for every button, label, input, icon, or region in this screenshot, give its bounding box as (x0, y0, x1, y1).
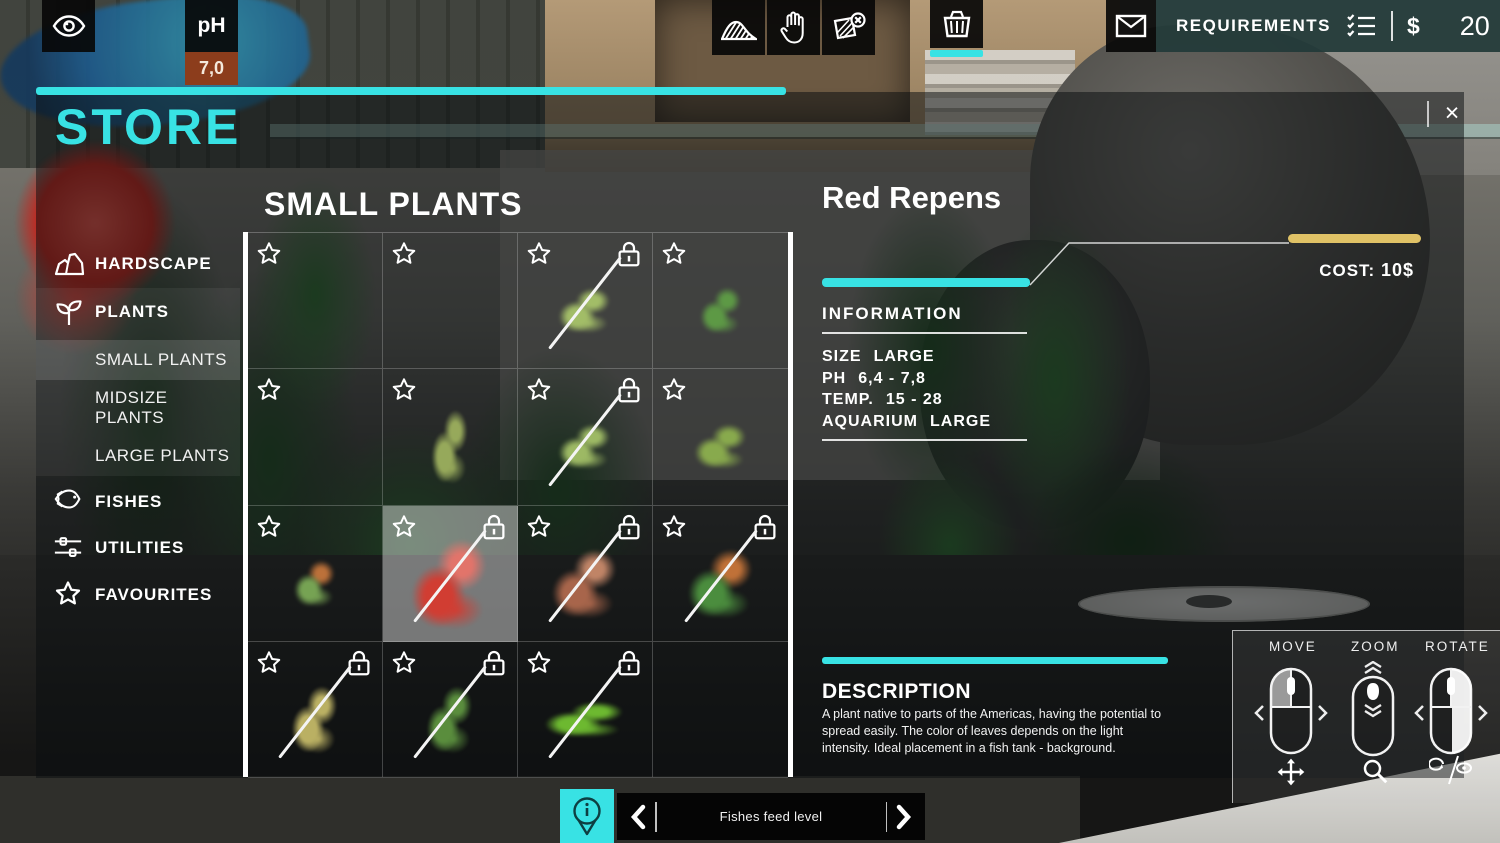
favorite-star-icon[interactable] (255, 376, 283, 404)
eye-icon (52, 14, 86, 38)
favorite-star-icon[interactable] (390, 649, 418, 677)
ph-value: 7,0 (185, 52, 238, 85)
fish-icon (53, 486, 85, 518)
favorite-star-icon[interactable] (390, 240, 418, 268)
plant-grid (248, 232, 788, 778)
lock-icon (479, 648, 509, 678)
plant-thumbnail-grass (421, 677, 479, 761)
sidebar-label: SMALL PLANTS (95, 350, 227, 370)
plant-cell[interactable] (383, 506, 518, 642)
currency-symbol: $ (1407, 13, 1420, 40)
plant-thumbnail-bush (402, 527, 498, 639)
sidebar-label: LARGE PLANTS (95, 446, 230, 466)
lock-icon (479, 512, 509, 542)
description-heading: DESCRIPTION (822, 680, 971, 704)
basket-selected-underline (930, 50, 983, 57)
rotate-label: ROTATE (1425, 639, 1490, 654)
description-text: A plant native to parts of the Americas,… (822, 706, 1174, 757)
sidebar-item-small-plants[interactable]: SMALL PLANTS (36, 340, 240, 380)
lock-icon (614, 648, 644, 678)
plant-thumbnail-tall-grass (427, 400, 473, 492)
item-name: Red Repens (822, 180, 1001, 216)
favorite-star-icon[interactable] (255, 513, 283, 541)
info-row: SIZELARGE (822, 346, 991, 368)
plant-cell[interactable] (518, 233, 653, 369)
requirements-label: REQUIREMENTS (1176, 16, 1331, 36)
favorite-star-icon[interactable] (525, 649, 553, 677)
sidebar-item-large-plants[interactable]: LARGE PLANTS (36, 436, 240, 476)
item-accent-bar (822, 278, 1030, 287)
rotate-view-icon (1429, 754, 1473, 786)
plant-cell[interactable] (653, 233, 788, 369)
sidebar-label: HARDSCAPE (95, 254, 212, 274)
terrain-erase-button[interactable] (822, 0, 875, 55)
game-screen: pH 7,0 REQUIREMENTS $ 20 (0, 0, 1500, 843)
store-top-progress-bar (36, 87, 786, 95)
lock-icon (750, 512, 780, 542)
cost-bar (1288, 234, 1421, 243)
favorite-star-icon[interactable] (660, 376, 688, 404)
description-accent-bar (822, 657, 1168, 664)
info-button[interactable] (560, 789, 614, 843)
mouse-controls-help: MOVE ZOOM ROTATE (1232, 630, 1500, 803)
plant-cell[interactable] (248, 642, 383, 778)
plant-cell[interactable] (383, 642, 518, 778)
terrain-erase-icon (831, 11, 867, 45)
status-cycler-bar: Fishes feed level (617, 793, 925, 840)
plant-cell[interactable] (653, 506, 788, 642)
information-rows: SIZELARGE PH6,4 - 7,8 TEMP.15 - 28 AQUAR… (822, 346, 991, 432)
plant-cell[interactable] (518, 369, 653, 505)
sidebar-label: FAVOURITES (95, 585, 212, 605)
plant-thumbnail-small-plant (695, 281, 747, 339)
sidebar-item-hardscape[interactable]: HARDSCAPE (36, 244, 240, 284)
checklist-icon (1345, 11, 1377, 41)
plant-icon (53, 296, 85, 328)
info-row: TEMP.15 - 28 (822, 389, 991, 411)
move-arrows-icon (1275, 756, 1307, 788)
category-heading: SMALL PLANTS (264, 186, 523, 223)
basket-icon (940, 8, 974, 40)
divider-line (822, 439, 1027, 441)
basket-store-button[interactable] (930, 0, 983, 48)
close-button[interactable]: × (1435, 96, 1469, 130)
plant-cell[interactable] (383, 369, 518, 505)
plant-cell[interactable] (653, 369, 788, 505)
plant-thumbnail-carpet (535, 697, 635, 741)
terrain-tool-button[interactable] (712, 0, 765, 55)
plant-thumbnail-sprig (688, 418, 754, 474)
sidebar-label: MIDSIZE PLANTS (95, 388, 240, 428)
plant-cell[interactable] (383, 233, 518, 369)
rock-icon (53, 248, 85, 280)
favorite-star-icon[interactable] (255, 240, 283, 268)
sidebar-item-utilities[interactable]: UTILITIES (36, 528, 240, 568)
info-pin-icon (568, 795, 606, 837)
plant-thumbnail-grass (286, 677, 344, 761)
sidebar-item-favourites[interactable]: FAVOURITES (36, 575, 240, 615)
plant-thumbnail-small-plant (289, 554, 341, 612)
ph-indicator: pH (185, 0, 238, 52)
requirements-button[interactable]: REQUIREMENTS $ 20 (1156, 0, 1500, 52)
plant-cell[interactable] (248, 233, 383, 369)
information-heading: INFORMATION (822, 304, 963, 324)
favorite-star-icon[interactable] (660, 240, 688, 268)
store-title: STORE (55, 98, 241, 156)
sidebar-item-midsize-plants[interactable]: MIDSIZE PLANTS (36, 388, 240, 428)
status-label: Fishes feed level (657, 809, 886, 824)
next-status-button[interactable] (887, 800, 921, 834)
favorite-star-icon[interactable] (525, 376, 553, 404)
lock-icon (614, 375, 644, 405)
hand-tool-button[interactable] (767, 0, 820, 55)
hand-icon (779, 11, 809, 45)
zoom-label: ZOOM (1351, 639, 1400, 654)
sidebar-label: UTILITIES (95, 538, 184, 558)
plant-cell[interactable] (518, 506, 653, 642)
lock-icon (344, 648, 374, 678)
sidebar-item-plants[interactable]: PLANTS (36, 292, 240, 332)
favorite-star-icon[interactable] (390, 376, 418, 404)
divider-line (822, 332, 1027, 334)
mail-button[interactable] (1106, 0, 1156, 52)
plant-cell[interactable] (248, 506, 383, 642)
favorite-star-icon[interactable] (525, 240, 553, 268)
plant-cell[interactable] (248, 369, 383, 505)
favorite-star-icon[interactable] (255, 649, 283, 677)
favorite-star-icon[interactable] (525, 513, 553, 541)
eye-view-button[interactable] (42, 0, 95, 52)
info-row: PH6,4 - 7,8 (822, 368, 991, 390)
sliders-icon (53, 532, 85, 564)
currency-amount: 20 (1460, 11, 1490, 42)
plant-cell[interactable] (653, 642, 788, 778)
lock-icon (614, 239, 644, 269)
lock-icon (614, 512, 644, 542)
info-row: AQUARIUMLARGE (822, 411, 991, 433)
grid-right-bar (788, 232, 793, 777)
plant-cell[interactable] (518, 642, 653, 778)
terrain-sand-icon (721, 13, 757, 43)
sidebar-label: FISHES (95, 492, 162, 512)
favorite-star-icon[interactable] (660, 513, 688, 541)
hud-divider (1391, 11, 1393, 41)
close-divider (1427, 101, 1429, 127)
cost-text: COST: 10$ (1186, 260, 1414, 281)
envelope-icon (1115, 14, 1147, 38)
star-icon (53, 579, 85, 611)
magnifier-icon (1360, 756, 1390, 786)
sidebar-item-fishes[interactable]: FISHES (36, 482, 240, 522)
prev-status-button[interactable] (621, 800, 655, 834)
sidebar-label: PLANTS (95, 302, 169, 322)
move-label: MOVE (1269, 639, 1317, 654)
ph-label: pH (198, 14, 226, 38)
